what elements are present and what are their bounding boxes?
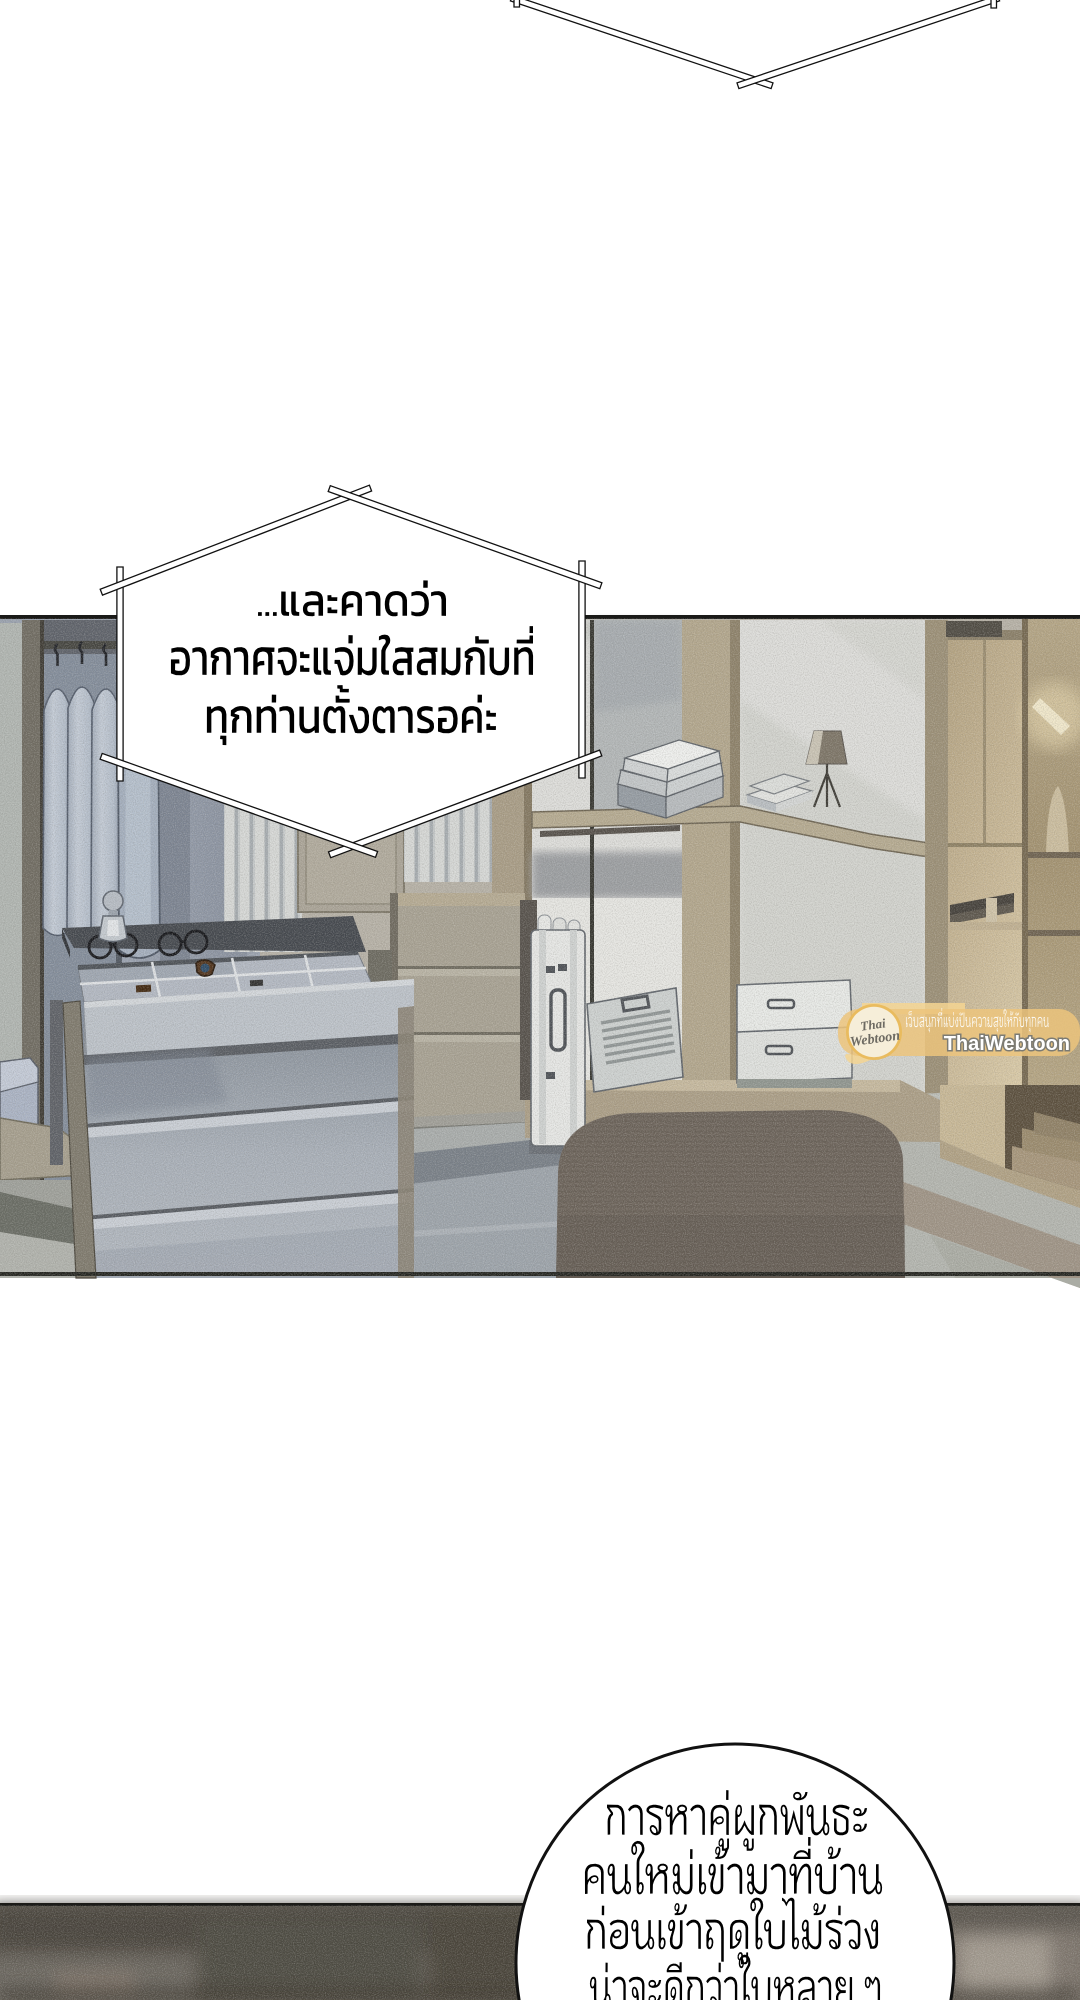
svg-text:ThaiWebtoon: ThaiWebtoon <box>944 1033 1070 1055</box>
